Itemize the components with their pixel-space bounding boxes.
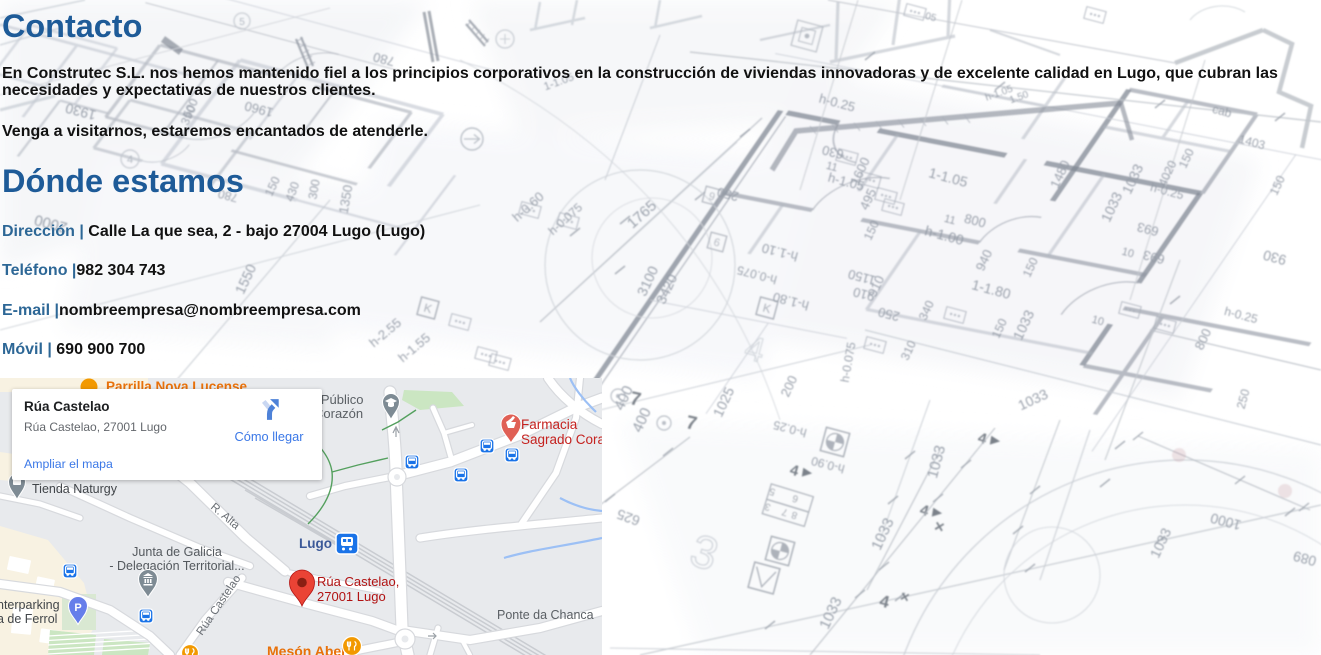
svg-text:Mesón Abel: Mesón Abel [267,643,345,655]
svg-text:Rúa Castelao,: Rúa Castelao, [317,574,399,589]
svg-text:a de Ferrol: a de Ferrol [0,612,57,626]
svg-text:Sagrado Cora: Sagrado Cora [521,432,602,447]
svg-text:P: P [74,602,81,614]
svg-text:Ponte da Chanca: Ponte da Chanca [497,608,594,622]
svg-text:5: 5 [239,17,245,28]
svg-text:- Delegación Territorial...: - Delegación Territorial... [109,559,244,573]
svg-text:27001 Lugo: 27001 Lugo [317,589,386,604]
svg-text:Junta de Galicia: Junta de Galicia [132,545,222,559]
svg-text:nterparking: nterparking [0,598,60,612]
svg-text:Farmacia: Farmacia [521,417,578,432]
svg-text:Tienda Naturgy: Tienda Naturgy [32,482,118,496]
svg-text:Lugo: Lugo [299,536,332,551]
